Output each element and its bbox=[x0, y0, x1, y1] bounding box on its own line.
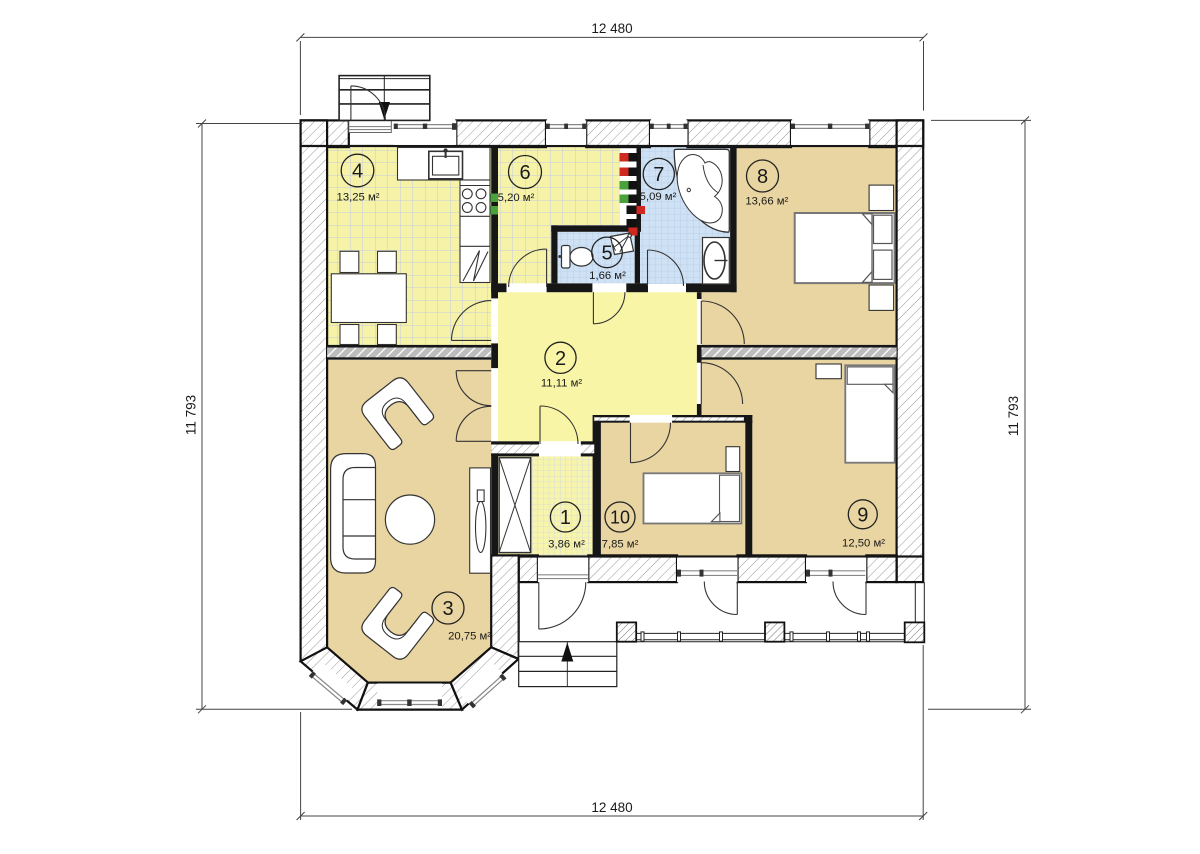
svg-text:9: 9 bbox=[857, 504, 868, 526]
svg-text:10: 10 bbox=[610, 508, 630, 528]
svg-text:7: 7 bbox=[653, 164, 664, 186]
svg-text:1,66 м²: 1,66 м² bbox=[589, 270, 626, 282]
svg-text:2: 2 bbox=[555, 348, 566, 370]
svg-text:1: 1 bbox=[560, 507, 571, 529]
svg-text:6: 6 bbox=[519, 162, 530, 184]
svg-text:20,75 м²: 20,75 м² bbox=[448, 631, 491, 643]
svg-text:7,85 м²: 7,85 м² bbox=[602, 539, 639, 551]
svg-text:4: 4 bbox=[352, 161, 363, 183]
svg-text:5,20 м²: 5,20 м² bbox=[498, 192, 535, 204]
svg-text:11 793: 11 793 bbox=[1006, 396, 1021, 436]
svg-text:5: 5 bbox=[601, 242, 612, 264]
svg-text:12 480: 12 480 bbox=[591, 21, 632, 36]
svg-text:5,09 м²: 5,09 м² bbox=[640, 191, 677, 203]
svg-text:11 793: 11 793 bbox=[184, 395, 199, 435]
svg-text:12 480: 12 480 bbox=[591, 800, 632, 815]
svg-text:3: 3 bbox=[442, 598, 453, 620]
svg-text:11,11 м²: 11,11 м² bbox=[541, 378, 582, 390]
svg-text:3,86 м²: 3,86 м² bbox=[548, 539, 585, 551]
svg-text:8: 8 bbox=[757, 166, 768, 188]
svg-text:12,50 м²: 12,50 м² bbox=[842, 537, 885, 549]
svg-text:13,66 м²: 13,66 м² bbox=[745, 196, 788, 208]
svg-text:13,25 м²: 13,25 м² bbox=[337, 192, 380, 204]
